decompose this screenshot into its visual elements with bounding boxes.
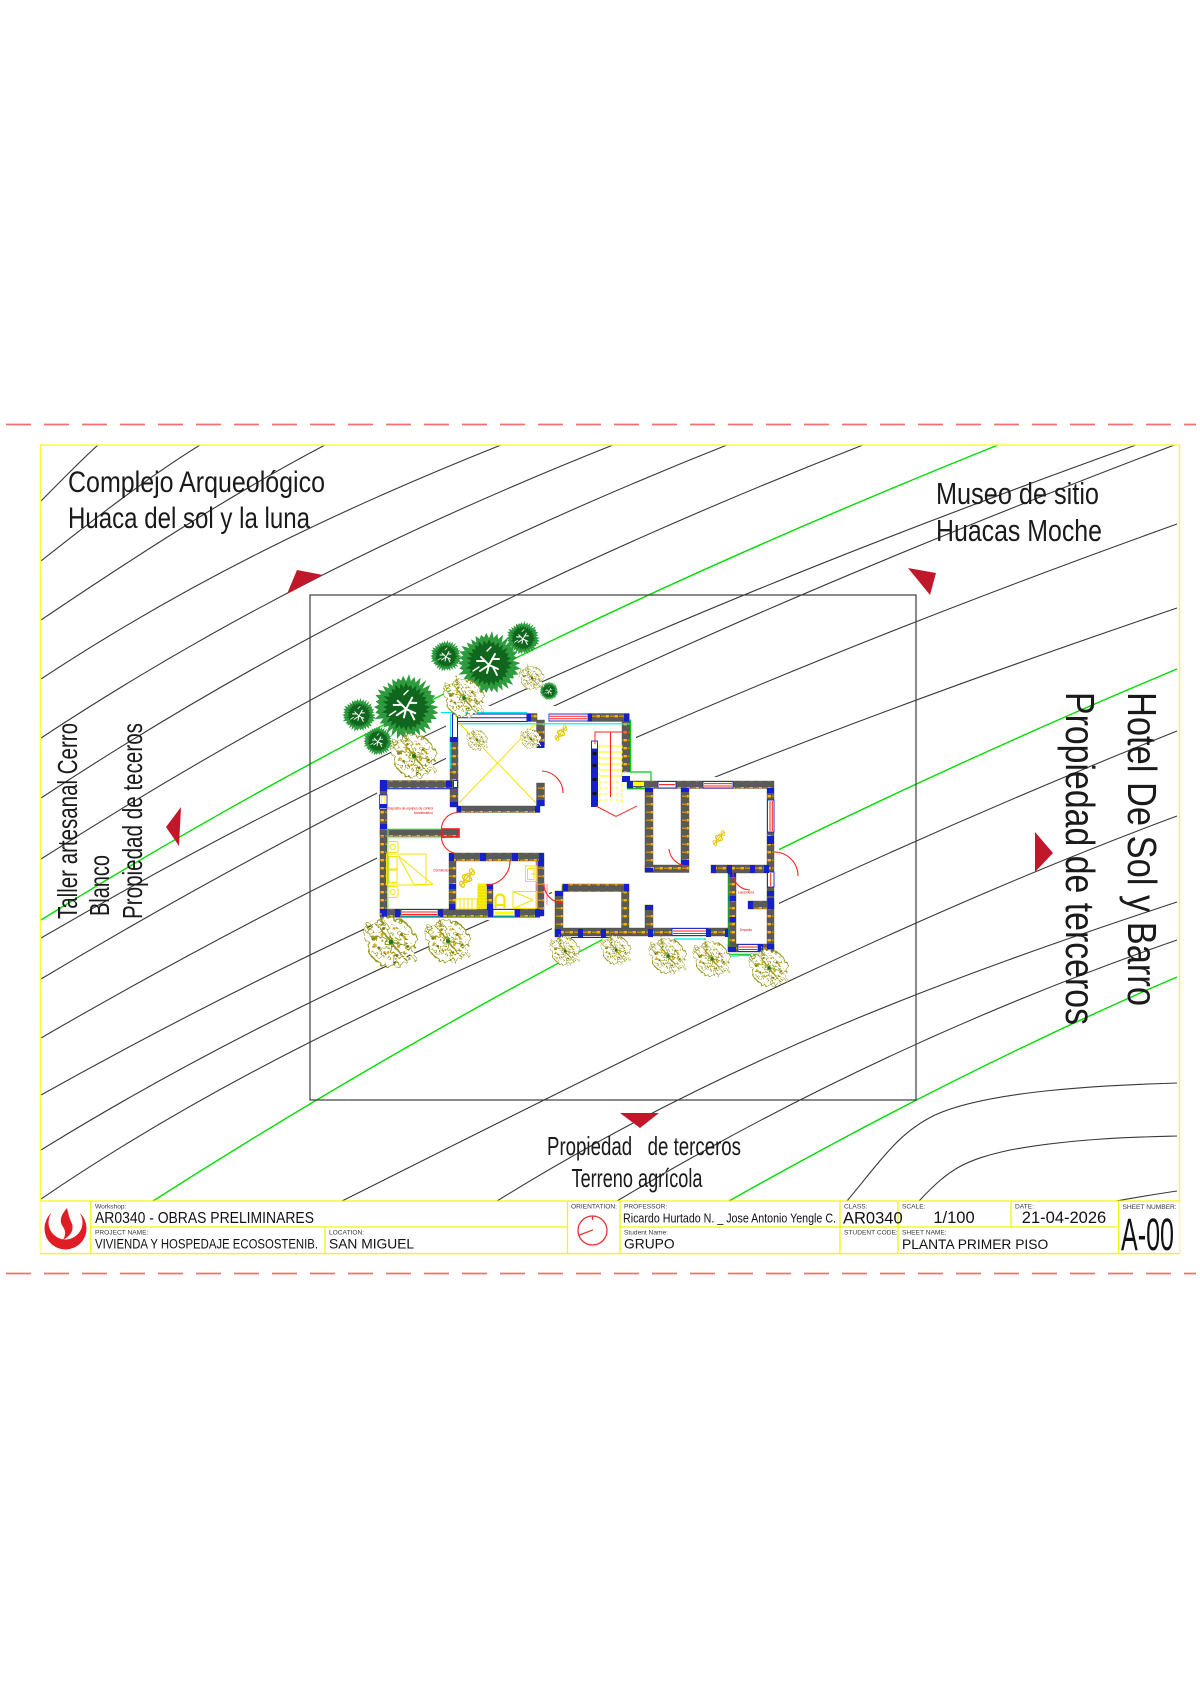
svg-text:Blanco: Blanco: [84, 855, 115, 916]
svg-text:ORIENTATION:: ORIENTATION:: [571, 1204, 617, 1211]
svg-text:Propiedad de terceros: Propiedad de terceros: [547, 1131, 741, 1161]
svg-text:Terreno agrícola: Terreno agrícola: [572, 1163, 703, 1193]
svg-text:Propiedad de teceros: Propiedad de teceros: [117, 723, 148, 919]
svg-text:Museo de sitio: Museo de sitio: [936, 476, 1099, 511]
svg-text:AR0340: AR0340: [843, 1210, 903, 1228]
svg-text:1/100: 1/100: [933, 1209, 974, 1227]
svg-text:Depósito: Depósito: [740, 928, 752, 932]
svg-text:Dormitorio: Dormitorio: [434, 868, 449, 872]
svg-text:Propiedad de terceros: Propiedad de terceros: [1057, 692, 1103, 1025]
svg-text:bioclimatico: bioclimatico: [414, 811, 433, 815]
svg-text:Lavandería: Lavandería: [738, 891, 755, 895]
svg-text:GRUPO: GRUPO: [624, 1237, 675, 1252]
svg-text:SHEET NAME:: SHEET NAME:: [902, 1230, 947, 1237]
svg-text:PROFESSOR:: PROFESSOR:: [624, 1204, 667, 1211]
svg-text:PROJECT NAME:: PROJECT NAME:: [95, 1230, 149, 1237]
svg-text:Complejo Arqueológico: Complejo Arqueológico: [68, 466, 325, 499]
svg-text:LOCATION:: LOCATION:: [329, 1230, 364, 1237]
svg-text:Student Name:: Student Name:: [624, 1230, 668, 1237]
svg-text:Hotel De Sol y Barro: Hotel De Sol y Barro: [1119, 692, 1165, 1006]
svg-text:SAN MIGUEL: SAN MIGUEL: [329, 1237, 414, 1252]
svg-text:A-00: A-00: [1121, 1209, 1174, 1260]
svg-text:VIVIENDA Y HOSPEDAJE ECOSOSTEN: VIVIENDA Y HOSPEDAJE ECOSOSTENIB.: [95, 1237, 318, 1252]
svg-text:STUDENT CODE:: STUDENT CODE:: [844, 1230, 898, 1237]
svg-text:AR0340 - OBRAS PRELIMINARES: AR0340 - OBRAS PRELIMINARES: [95, 1210, 314, 1227]
svg-text:SCALE:: SCALE:: [902, 1204, 926, 1211]
svg-text:PLANTA PRIMER PISO: PLANTA PRIMER PISO: [902, 1237, 1048, 1252]
svg-text:Huaca del sol y la luna: Huaca del sol y la luna: [68, 502, 310, 535]
svg-text:Taller artesanal Cerro: Taller artesanal Cerro: [52, 723, 83, 919]
svg-text:Depósito de equipos de control: Depósito de equipos de control: [388, 807, 433, 811]
svg-text:Huacas Moche: Huacas Moche: [936, 513, 1102, 548]
svg-text:Ricardo Hurtado N. _ Jose Anto: Ricardo Hurtado N. _ Jose Antonio Yengle…: [623, 1211, 836, 1226]
svg-text:21-04-2026: 21-04-2026: [1022, 1209, 1106, 1227]
